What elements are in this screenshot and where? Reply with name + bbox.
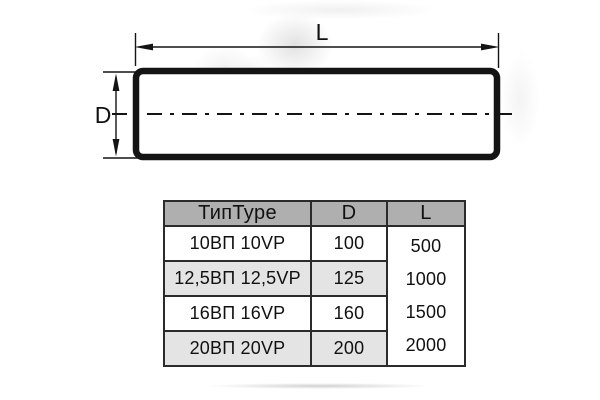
diameter-dimension-label: D: [95, 102, 112, 128]
length-value: 1000: [388, 263, 464, 296]
cell-type-10vp: 10ВП 10VP: [164, 226, 311, 261]
diameter-arrow-top: [113, 74, 120, 92]
duct-dimension-diagram: L D: [0, 0, 600, 195]
cell-diameter-12-5vp: 125: [311, 261, 387, 296]
cell-type-16vp: 16ВП 16VP: [164, 296, 311, 331]
cell-diameter-10vp: 100: [311, 226, 387, 261]
cell-length-values: 500 1000 1500 2000: [387, 226, 465, 366]
length-value: 500: [388, 230, 464, 263]
diameter-arrow-bottom: [113, 139, 120, 157]
cell-diameter-20vp: 200: [311, 331, 387, 366]
length-dimension-label: L: [316, 19, 329, 45]
header-type: ТипType: [164, 201, 311, 226]
table-header-row: ТипType D L: [164, 201, 465, 226]
table-row: 10ВП 10VP 100 500 1000 1500 2000: [164, 226, 465, 261]
cell-type-12-5vp: 12,5ВП 12,5VP: [164, 261, 311, 296]
header-length: L: [387, 201, 465, 226]
length-value: 2000: [388, 329, 464, 362]
length-value: 1500: [388, 296, 464, 329]
length-arrow-right: [481, 44, 500, 51]
dimensions-table: ТипType D L 10ВП 10VP 100 500 1000 1500 …: [163, 200, 466, 367]
length-arrow-left: [135, 44, 154, 51]
cell-diameter-16vp: 160: [311, 296, 387, 331]
header-diameter: D: [311, 201, 387, 226]
cell-type-20vp: 20ВП 20VP: [164, 331, 311, 366]
